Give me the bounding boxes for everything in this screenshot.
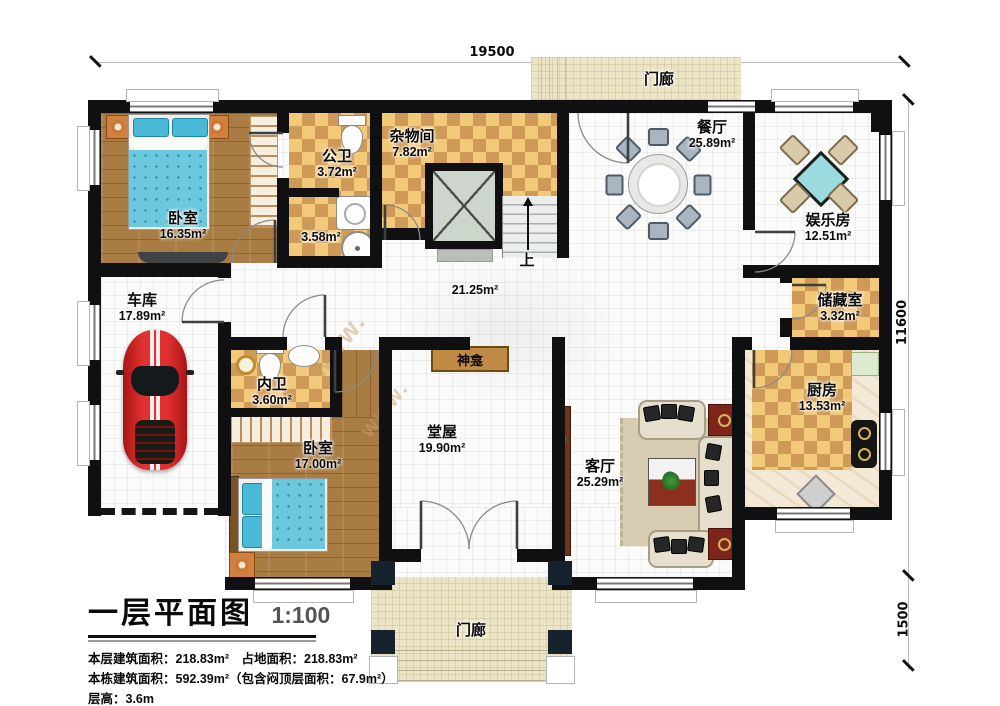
room-name: 堂屋 (392, 424, 492, 441)
window (777, 508, 850, 519)
window (880, 413, 891, 470)
car (123, 330, 187, 470)
wall (382, 228, 428, 240)
label-main-hall: 堂屋 19.90m² (392, 424, 492, 456)
sofa-pillow (687, 536, 705, 553)
shower-head (236, 355, 256, 375)
cutting-board (851, 352, 879, 376)
room-name: 杂物间 (366, 128, 458, 145)
dimension-porch-depth: 1500 (897, 601, 912, 637)
label-inner-bath: 内卫 3.60m² (222, 376, 322, 408)
room-name: 客厅 (550, 458, 650, 475)
room-area: 7.82m² (366, 145, 458, 159)
wall (732, 337, 745, 590)
dimension-height: 11600 (895, 300, 910, 345)
garage-door (101, 508, 218, 515)
title-info-line: 层高：3.6m (88, 689, 518, 706)
room-area: 16.35m² (123, 227, 243, 241)
window-sill (77, 301, 90, 366)
stove (851, 420, 877, 468)
pillow (242, 516, 264, 548)
sofa-pillow (643, 405, 661, 423)
room-name: 车库 (92, 292, 192, 309)
window (89, 405, 100, 460)
room-area: 13.53m² (772, 399, 872, 413)
window-sill (595, 590, 697, 603)
wall (743, 265, 892, 278)
label-bedroom2: 卧室 17.00m² (268, 440, 368, 472)
dining-table (628, 154, 688, 214)
stairs-arrow-head (523, 197, 533, 206)
wall (225, 337, 287, 350)
room-area: 25.89m² (671, 136, 753, 150)
label-hall: 21.25m² (435, 283, 515, 297)
sofa-pillow (677, 405, 695, 423)
porch-top-label: 门廊 (629, 71, 689, 88)
title-block: 一层平面图 1:100 本层建筑面积：218.83m² 占地面积：218.83m… (88, 588, 518, 706)
elevator-landing (437, 249, 493, 262)
wall (289, 256, 382, 268)
wall (218, 322, 231, 516)
car-engine-cover (135, 420, 175, 464)
wall (517, 549, 552, 562)
nightstand (229, 552, 255, 578)
shrine-label: 神龛 (457, 350, 483, 369)
label-garage: 车库 17.89m² (92, 292, 192, 324)
porch-pillar (548, 630, 572, 654)
room-name: 娱乐房 (778, 212, 878, 229)
wall (277, 178, 289, 268)
label-utility: 杂物间 7.82m² (366, 128, 458, 160)
window-sill (771, 89, 859, 102)
window-sill (77, 401, 90, 466)
window-sill (892, 131, 905, 206)
sofa-pillow (653, 536, 671, 553)
window (597, 578, 693, 589)
bed-blanket (272, 479, 325, 549)
room-name: 餐厅 (671, 119, 753, 136)
room-name: 储藏室 (790, 292, 890, 309)
wardrobe (250, 116, 278, 228)
wall (330, 337, 342, 415)
room-area: 21.25m² (435, 283, 515, 297)
dimension-width: 19500 (452, 45, 532, 60)
wall (277, 113, 289, 133)
wall-half (289, 188, 339, 197)
room-area: 3.72m² (287, 165, 387, 179)
title-underline (88, 635, 316, 638)
dining-chair (648, 222, 669, 240)
wall (790, 337, 892, 350)
car-mirror (186, 370, 194, 375)
room-area: 12.51m² (778, 229, 878, 243)
label-storage: 储藏室 3.32m² (790, 292, 890, 324)
room-name: 内卫 (222, 376, 322, 393)
title-info-line: 本层建筑面积：218.83m² 占地面积：218.83m² (88, 649, 518, 669)
label-entertainment: 娱乐房 12.51m² (778, 212, 878, 244)
dining-chair (694, 175, 712, 196)
window (775, 101, 853, 112)
wall (392, 549, 421, 562)
window-sill (546, 656, 575, 684)
room-area: 3.58m² (281, 230, 361, 244)
wall (88, 263, 231, 277)
window-sill (77, 126, 90, 191)
watermark-blob (380, 250, 640, 410)
label-bath-zone: 3.58m² (281, 230, 361, 244)
dining-chair (648, 128, 669, 146)
wardrobe (231, 415, 332, 443)
dimension-line-right (908, 100, 909, 670)
wall (379, 337, 392, 590)
sofa-pillow (704, 470, 719, 486)
porch-top: 门廊 (531, 57, 741, 103)
room-area: 25.29m² (550, 475, 650, 489)
window (880, 135, 891, 200)
title-underline-2 (88, 640, 316, 642)
car-windshield (131, 366, 179, 396)
car-mirror (116, 370, 124, 375)
plan-scale: 1:100 (271, 602, 330, 629)
dimension-line-top (95, 62, 905, 63)
wall (557, 113, 569, 258)
pillow (172, 118, 208, 137)
room-area: 19.90m² (392, 441, 492, 455)
sofa-pillow (705, 443, 723, 461)
gold-ring (718, 414, 731, 427)
dining-chair (606, 175, 624, 196)
label-living: 客厅 25.29m² (550, 458, 650, 490)
wall (780, 278, 792, 283)
window-sill (126, 89, 219, 102)
room-name: 卧室 (268, 440, 368, 457)
label-kitchen: 厨房 13.53m² (772, 382, 872, 414)
porch-pillar (548, 561, 572, 585)
nightstand (106, 115, 130, 139)
room-name: 卧室 (123, 210, 243, 227)
stairs-up-label: 上 (512, 252, 542, 269)
room-area: 3.60m² (222, 393, 322, 407)
porch-pillar (371, 561, 395, 585)
sofa-pillow (661, 404, 677, 419)
title-info-line: 本栋建筑面积：592.39m²（包含闷顶层面积：67.9m²） (88, 669, 518, 689)
stairs-arrow-line (527, 204, 529, 250)
washing-machine (336, 196, 372, 230)
bedroom1-console (138, 252, 228, 263)
bath-sink (288, 345, 320, 367)
burner (858, 448, 871, 461)
floor-plan-canvas: 19500 11600 1500 门廊 门廊 www. www. (0, 0, 1000, 706)
sofa-pillow (705, 495, 723, 513)
gold-ring (718, 538, 731, 551)
basin-drain (355, 246, 360, 251)
wall (218, 263, 231, 278)
wall (392, 337, 470, 350)
room-area: 17.00m² (268, 457, 368, 471)
burner (858, 427, 871, 440)
room-name: 厨房 (772, 382, 872, 399)
washer-drum (344, 203, 366, 225)
porch-steps (541, 57, 567, 103)
room-area: 17.89m² (92, 309, 192, 323)
room-area: 3.32m² (790, 309, 890, 323)
window (708, 101, 755, 112)
window-sill (775, 520, 854, 533)
label-bedroom1: 卧室 16.35m² (123, 210, 243, 242)
window (89, 130, 100, 185)
wall-corner (871, 100, 892, 132)
label-dining: 餐厅 25.89m² (671, 119, 753, 151)
pillow (133, 118, 169, 137)
dining-table-top (637, 163, 681, 207)
sofa-pillow (671, 539, 687, 554)
wall (231, 408, 342, 417)
window-sill (892, 409, 905, 476)
pillow (242, 483, 264, 515)
plan-title: 一层平面图 (88, 588, 253, 632)
window (130, 101, 213, 112)
elevator-shaft (425, 163, 503, 249)
